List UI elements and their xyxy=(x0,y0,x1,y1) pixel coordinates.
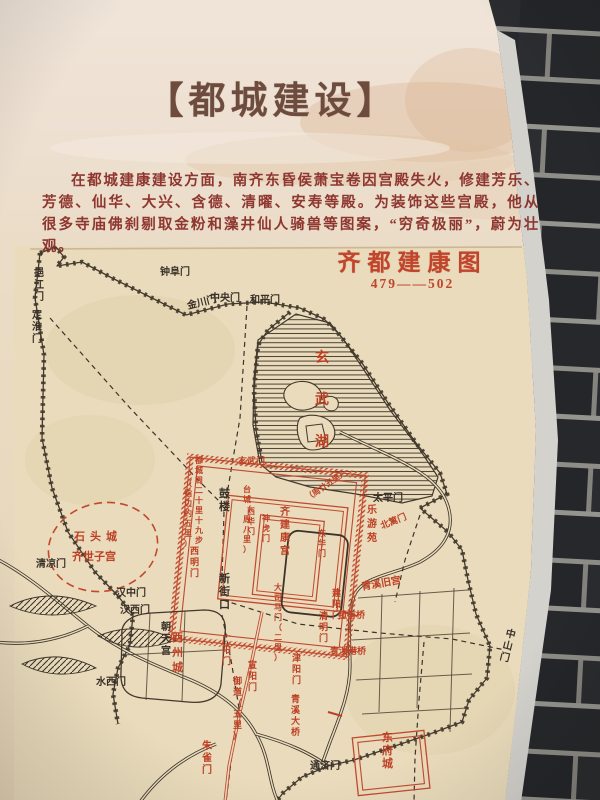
map-title: 齐都建康图 xyxy=(325,251,500,275)
map-period: 479——502 xyxy=(325,276,500,292)
exhibit-title: 【都城建设】 xyxy=(0,70,545,124)
map-title-block: 齐都建康图 479——502 xyxy=(325,251,500,292)
intro-paragraph: 在都城建康建设方面，南齐东昏侯萧宝卷因宫殿失火，修建芳乐、芳德、仙华、大兴、含德… xyxy=(42,170,540,258)
photo-of-exhibit-panel: 钟阜门金川门中央门和平门挹江门定淮门太平门清凉门汉中门汉西门水西门通济门中山门鼓… xyxy=(0,0,600,800)
